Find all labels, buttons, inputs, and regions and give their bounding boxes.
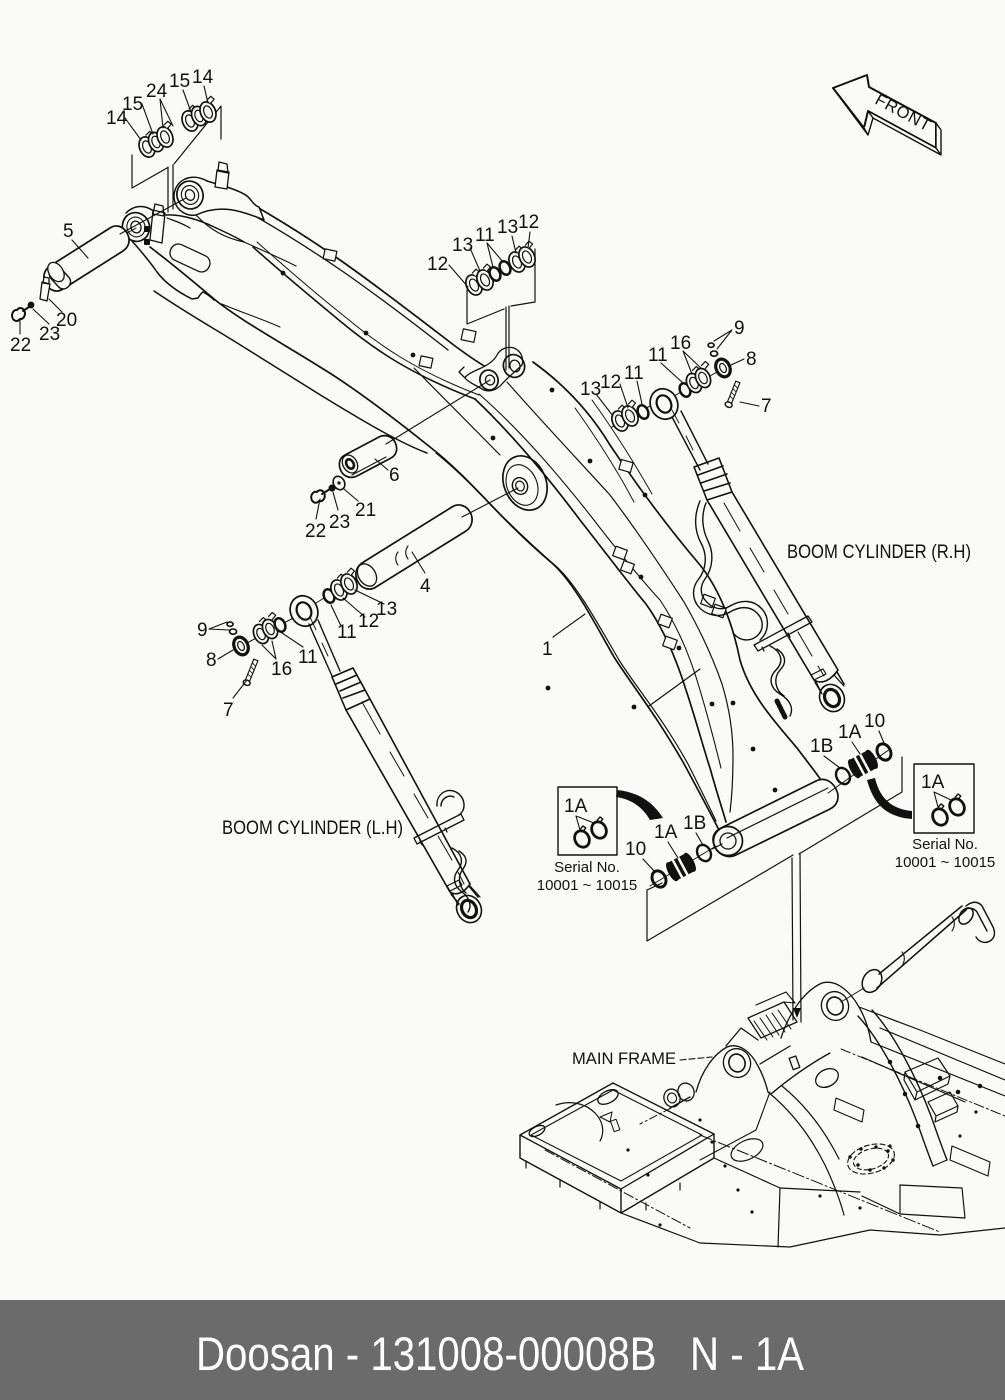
svg-text:5: 5 — [63, 221, 74, 242]
svg-text:1A: 1A — [654, 822, 678, 843]
svg-text:21: 21 — [355, 500, 376, 521]
svg-text:1B: 1B — [683, 813, 706, 834]
svg-text:12: 12 — [600, 372, 621, 393]
svg-text:1A: 1A — [838, 722, 862, 743]
svg-text:9: 9 — [734, 318, 745, 339]
svg-text:11: 11 — [648, 345, 668, 366]
svg-text:4: 4 — [420, 576, 431, 597]
svg-text:7: 7 — [761, 396, 772, 417]
svg-text:8: 8 — [746, 349, 757, 370]
svg-text:8: 8 — [206, 650, 217, 671]
svg-text:7: 7 — [223, 700, 234, 721]
svg-text:10: 10 — [864, 711, 885, 732]
svg-text:12: 12 — [518, 212, 539, 233]
svg-text:16: 16 — [670, 333, 691, 354]
svg-text:BOOM CYLINDER (L.H): BOOM CYLINDER (L.H) — [222, 818, 403, 839]
svg-text:MAIN FRAME: MAIN FRAME — [572, 1050, 676, 1068]
svg-text:16: 16 — [271, 659, 292, 680]
svg-text:Serial No.: Serial No. — [912, 836, 978, 853]
svg-text:12: 12 — [427, 254, 448, 275]
svg-text:BOOM CYLINDER (R.H): BOOM CYLINDER (R.H) — [787, 541, 971, 563]
svg-text:23: 23 — [329, 512, 350, 533]
svg-text:6: 6 — [389, 465, 400, 486]
svg-text:22: 22 — [305, 521, 326, 542]
svg-text:1A: 1A — [564, 796, 588, 817]
svg-text:14: 14 — [192, 67, 214, 88]
svg-text:Doosan - 131008-00008B N - 1: Doosan - 131008-00008B N - 1A — [196, 1327, 805, 1380]
svg-text:22: 22 — [10, 335, 31, 356]
svg-text:Serial No.: Serial No. — [554, 859, 620, 876]
svg-text:23: 23 — [39, 324, 60, 345]
svg-text:11: 11 — [624, 363, 644, 384]
svg-text:11: 11 — [475, 225, 495, 246]
svg-text:1A: 1A — [921, 772, 945, 793]
svg-text:15: 15 — [122, 94, 143, 115]
svg-text:11: 11 — [337, 622, 357, 643]
svg-text:11: 11 — [298, 647, 318, 668]
svg-text:9: 9 — [197, 620, 208, 641]
svg-text:15: 15 — [169, 71, 190, 92]
svg-text:13: 13 — [452, 235, 473, 256]
svg-text:1B: 1B — [810, 736, 833, 757]
svg-text:10001 ~ 10015: 10001 ~ 10015 — [895, 854, 996, 871]
svg-text:13: 13 — [497, 217, 518, 238]
svg-text:10001 ~ 10015: 10001 ~ 10015 — [537, 877, 638, 894]
svg-text:1: 1 — [542, 639, 553, 660]
svg-text:10: 10 — [625, 839, 646, 860]
svg-text:24: 24 — [146, 81, 168, 102]
